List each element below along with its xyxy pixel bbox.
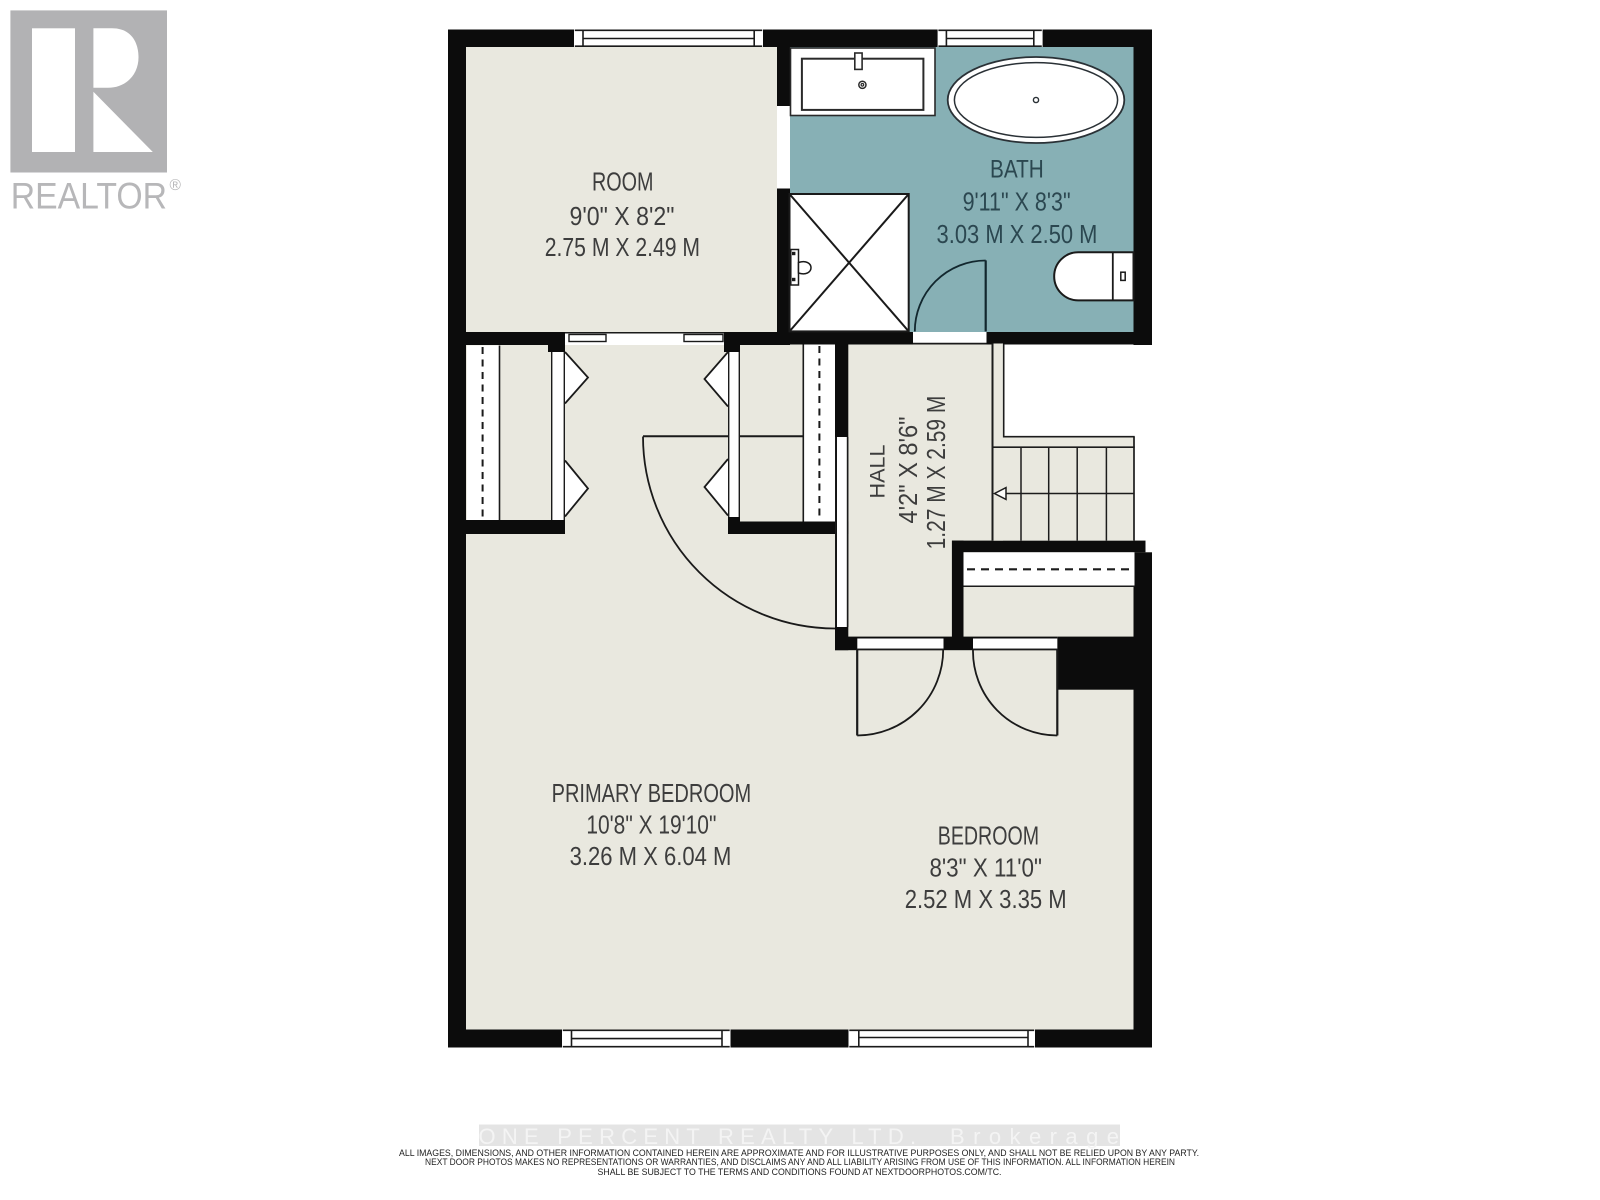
svg-text:3.26 M X 6.04 M: 3.26 M X 6.04 M xyxy=(570,841,732,871)
svg-text:ROOM: ROOM xyxy=(592,167,654,197)
svg-text:9'0" X 8'2": 9'0" X 8'2" xyxy=(570,201,675,231)
svg-text:REALTOR: REALTOR xyxy=(11,174,167,216)
svg-text:2.75 M X 2.49 M: 2.75 M X 2.49 M xyxy=(545,232,700,262)
svg-text:NEXT DOOR PHOTOS MAKES NO REPR: NEXT DOOR PHOTOS MAKES NO REPRESENTATION… xyxy=(425,1157,1175,1167)
svg-text:10'8" X 19'10": 10'8" X 19'10" xyxy=(586,810,716,840)
svg-text:2.52 M X 3.35 M: 2.52 M X 3.35 M xyxy=(905,884,1067,914)
svg-text:Brokerage: Brokerage xyxy=(950,1124,1119,1149)
svg-text:ONE PERCENT REALTY LTD.: ONE PERCENT REALTY LTD. xyxy=(479,1124,917,1149)
svg-text:®: ® xyxy=(170,177,182,194)
svg-text:3.03 M X 2.50 M: 3.03 M X 2.50 M xyxy=(937,219,1098,249)
svg-text:HALL: HALL xyxy=(867,445,890,499)
svg-text:4'2" X 8'6": 4'2" X 8'6" xyxy=(893,417,923,524)
svg-text:BATH: BATH xyxy=(990,156,1044,184)
svg-text:BEDROOM: BEDROOM xyxy=(938,821,1039,851)
svg-text:8'3" X 11'0": 8'3" X 11'0" xyxy=(929,853,1042,883)
svg-text:9'11" X 8'3": 9'11" X 8'3" xyxy=(963,187,1071,217)
svg-text:PRIMARY BEDROOM: PRIMARY BEDROOM xyxy=(552,778,752,808)
svg-text:1.27 M X 2.59 M: 1.27 M X 2.59 M xyxy=(921,396,951,550)
svg-text:SHALL BE SUBJECT TO THE TERMS: SHALL BE SUBJECT TO THE TERMS AND CONDIT… xyxy=(598,1167,1002,1177)
